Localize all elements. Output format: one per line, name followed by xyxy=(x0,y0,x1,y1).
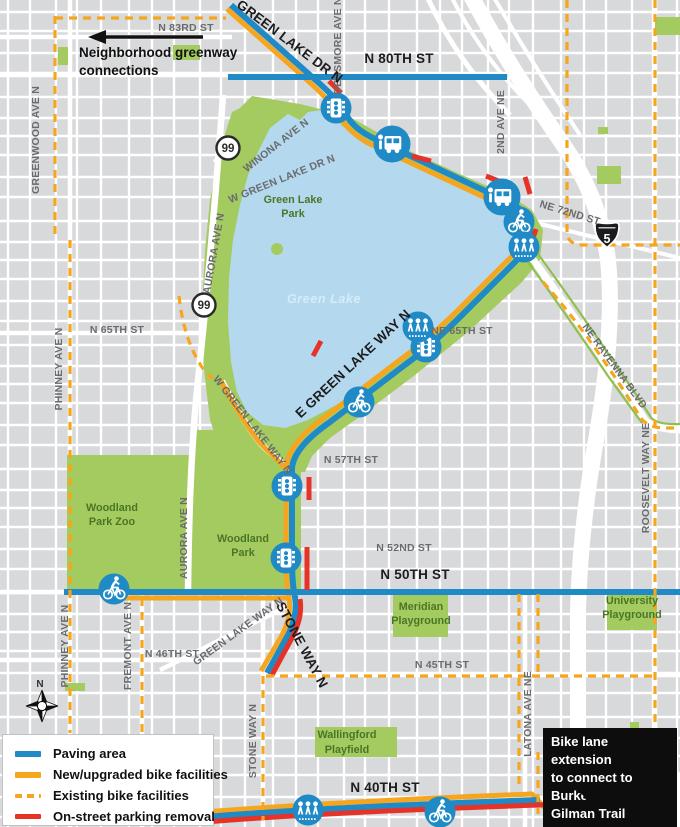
legend-item-paving: Paving area xyxy=(15,743,213,764)
map-legend: Paving area New/upgraded bike facilities… xyxy=(2,734,214,826)
duck-island xyxy=(271,243,283,255)
callout-line: Bike lane extension xyxy=(551,733,671,769)
bus-icon xyxy=(374,126,411,163)
legend-label: Paving area xyxy=(53,746,126,761)
street-label: 2ND AVE NE xyxy=(495,90,507,154)
legend-item-parking-removal: On-street parking removal xyxy=(15,806,213,827)
park-label: Woodland xyxy=(217,533,269,545)
sr99-shield: 99 xyxy=(193,294,216,317)
bike-icon xyxy=(425,797,456,827)
street-label: FREMONT AVE N xyxy=(122,602,134,690)
map-canvas: 99 99 5 N N 83RD ST DENSMORE AVE N 2ND A… xyxy=(0,0,680,827)
pedestrians-icon xyxy=(293,795,324,826)
greenway-note-line: Neighborhood greenway xyxy=(79,44,239,62)
legend-label: Existing bike facilities xyxy=(53,788,189,803)
street-label: N 52ND ST xyxy=(376,542,432,554)
project-street-label: N 80TH ST xyxy=(364,51,434,66)
traffic-signal-icon xyxy=(271,543,302,574)
bike-icon xyxy=(344,387,375,418)
park-label: Park Zoo xyxy=(89,516,136,528)
street-label: GREENWOOD AVE N xyxy=(30,86,42,194)
compass-north-label: N xyxy=(36,679,43,690)
park-label: Green Lake xyxy=(264,194,323,206)
street-label: N 57TH ST xyxy=(324,454,379,466)
street-label: PHINNEY AVE N xyxy=(59,605,71,688)
greenway-note: Neighborhood greenway connections xyxy=(79,44,239,80)
park-label: Woodland xyxy=(86,502,138,514)
traffic-signal-icon xyxy=(321,93,352,124)
paving-swatch xyxy=(15,751,41,757)
project-street-label: N 50TH ST xyxy=(380,567,450,582)
park-label: Park xyxy=(231,547,255,559)
i5-number: 5 xyxy=(604,232,611,246)
street-label: AURORA AVE N xyxy=(178,497,190,579)
sr99-number: 99 xyxy=(198,300,211,312)
park-label: Park xyxy=(281,208,305,220)
park-label: Playfield xyxy=(325,744,369,756)
greenlake-map: 99 99 5 N N 83RD ST DENSMORE AVE N 2ND A… xyxy=(0,0,680,827)
callout-line: to connect to Burke xyxy=(551,769,671,805)
park-label: Playground xyxy=(391,615,450,627)
sr99-shield: 99 xyxy=(217,137,240,160)
water-label: Green Lake xyxy=(287,292,361,306)
park-label: University xyxy=(606,595,658,607)
street-label: NE 65TH ST xyxy=(431,325,493,337)
pedestrians-icon xyxy=(509,232,540,263)
street-label: LATONA AVE NE xyxy=(522,671,534,757)
new-bike-swatch xyxy=(15,772,41,778)
street-label: PHINNEY AVE N xyxy=(53,328,65,411)
street-label: N 45TH ST xyxy=(415,659,470,671)
legend-label: On-street parking removal xyxy=(53,809,215,824)
sr99-number: 99 xyxy=(222,143,235,155)
street-label: STONE WAY N xyxy=(247,704,259,778)
legend-item-existing-bike: Existing bike facilities xyxy=(15,785,213,806)
project-street-label: N 40TH ST xyxy=(350,780,420,795)
greenway-note-line: connections xyxy=(79,62,239,80)
bike-icon xyxy=(99,574,130,605)
street-label: ROOSEVELT WAY NE xyxy=(640,423,652,533)
callout-line: Gilman Trail xyxy=(551,805,671,823)
legend-item-new-bike: New/upgraded bike facilities xyxy=(15,764,213,785)
street-label: N 65TH ST xyxy=(90,324,145,336)
park-label: Wallingford xyxy=(318,729,377,741)
park-label: Playground xyxy=(602,609,661,621)
existing-bike-swatch xyxy=(15,794,41,798)
park-label: Meridian xyxy=(399,601,443,613)
burke-gilman-callout: Bike lane extension to connect to Burke … xyxy=(543,728,677,827)
street-label: N 46TH ST xyxy=(145,648,200,660)
legend-label: New/upgraded bike facilities xyxy=(53,767,228,782)
street-label: N 83RD ST xyxy=(158,22,214,34)
parking-removal-swatch xyxy=(15,814,41,819)
callout-pointer xyxy=(576,786,598,801)
